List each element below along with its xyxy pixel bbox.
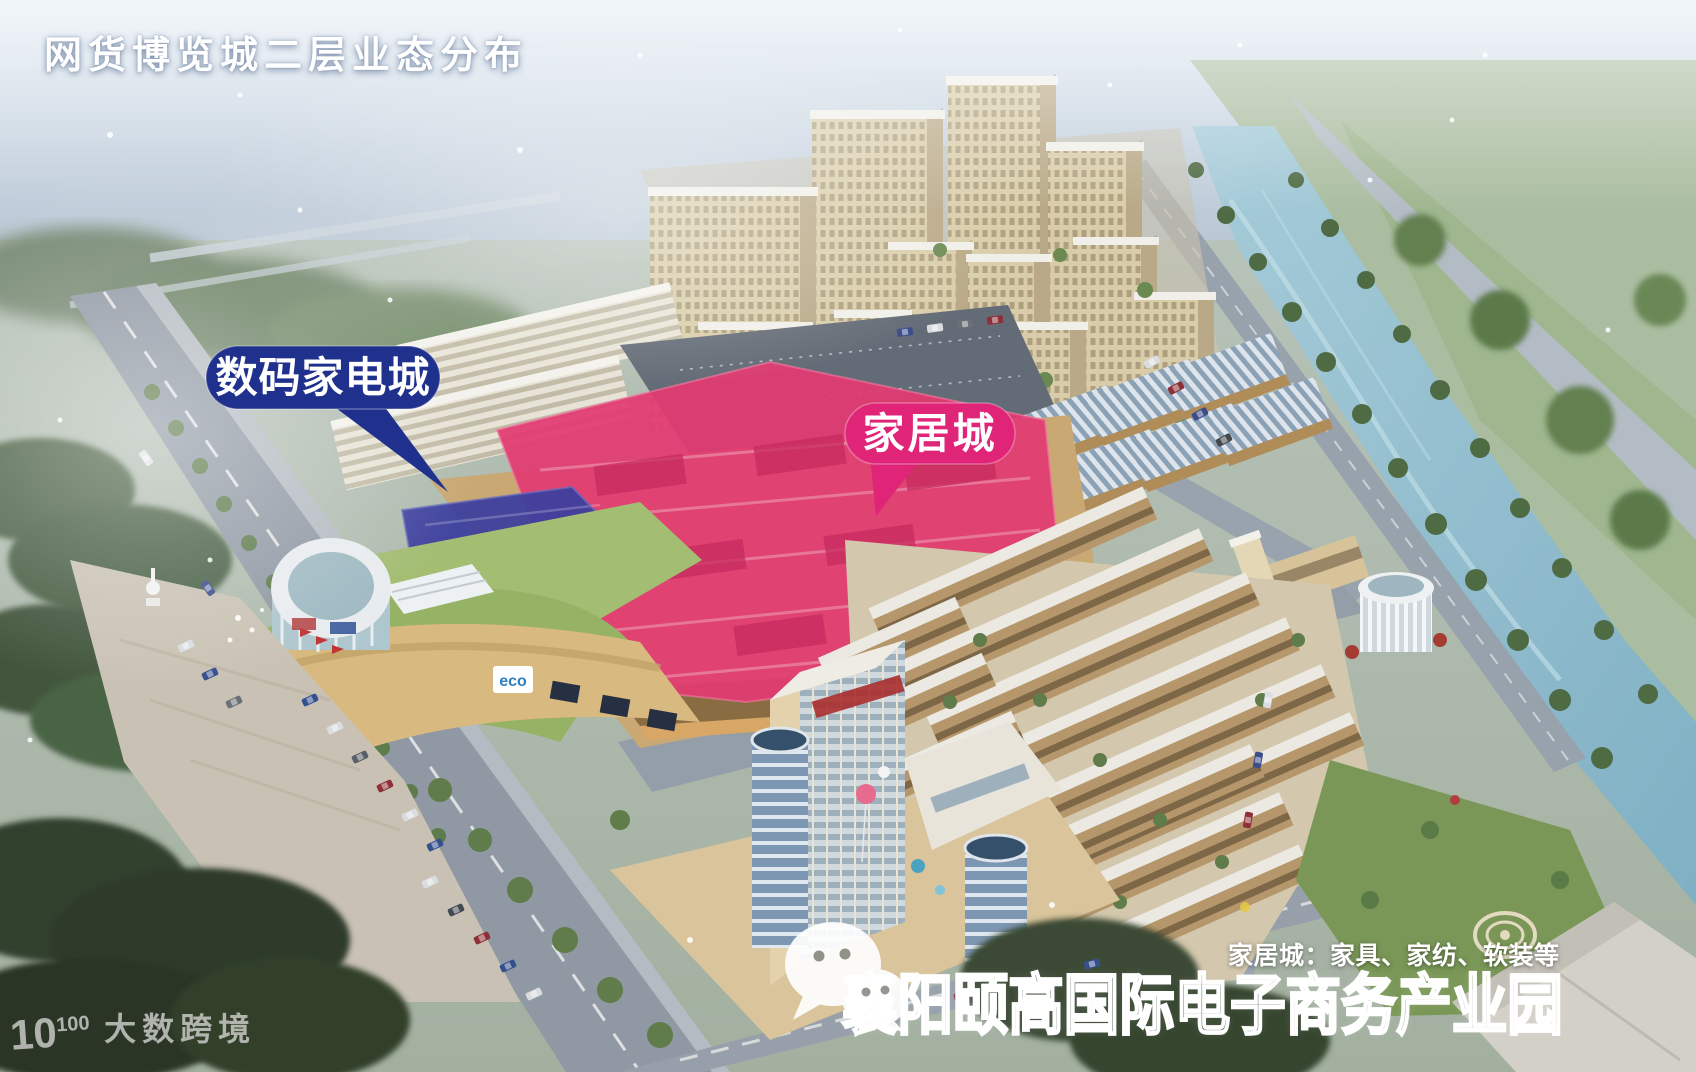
- round-pavilion: [1345, 572, 1447, 659]
- wechat-icon: [775, 918, 910, 1033]
- park-name: 襄阳颐高国际电子商务产业园: [842, 952, 1573, 1048]
- callout-home-tail: [870, 456, 918, 516]
- watermark: 10100 大数跨境: [10, 1004, 256, 1054]
- callout-home-city: 家居城: [840, 398, 1025, 523]
- callout-digital-city: 数码家电城: [200, 340, 460, 500]
- eco-sign: eco: [493, 666, 533, 693]
- eco-sign-text: eco: [499, 673, 527, 690]
- glass-cylinder: [752, 728, 808, 948]
- callout-digital-label: 数码家电城: [215, 354, 430, 401]
- watermark-logo: 10100: [9, 1009, 92, 1056]
- watermark-brand: 大数跨境: [104, 1004, 256, 1054]
- scene: eco: [0, 0, 1696, 1072]
- page-title: 网货博览城二层业态分布: [44, 24, 528, 79]
- haze-center: [200, 30, 1040, 390]
- callout-digital-tail: [328, 398, 448, 492]
- aerial-rendering-poster: eco: [0, 0, 1696, 1072]
- callout-home-label: 家居城: [862, 410, 997, 457]
